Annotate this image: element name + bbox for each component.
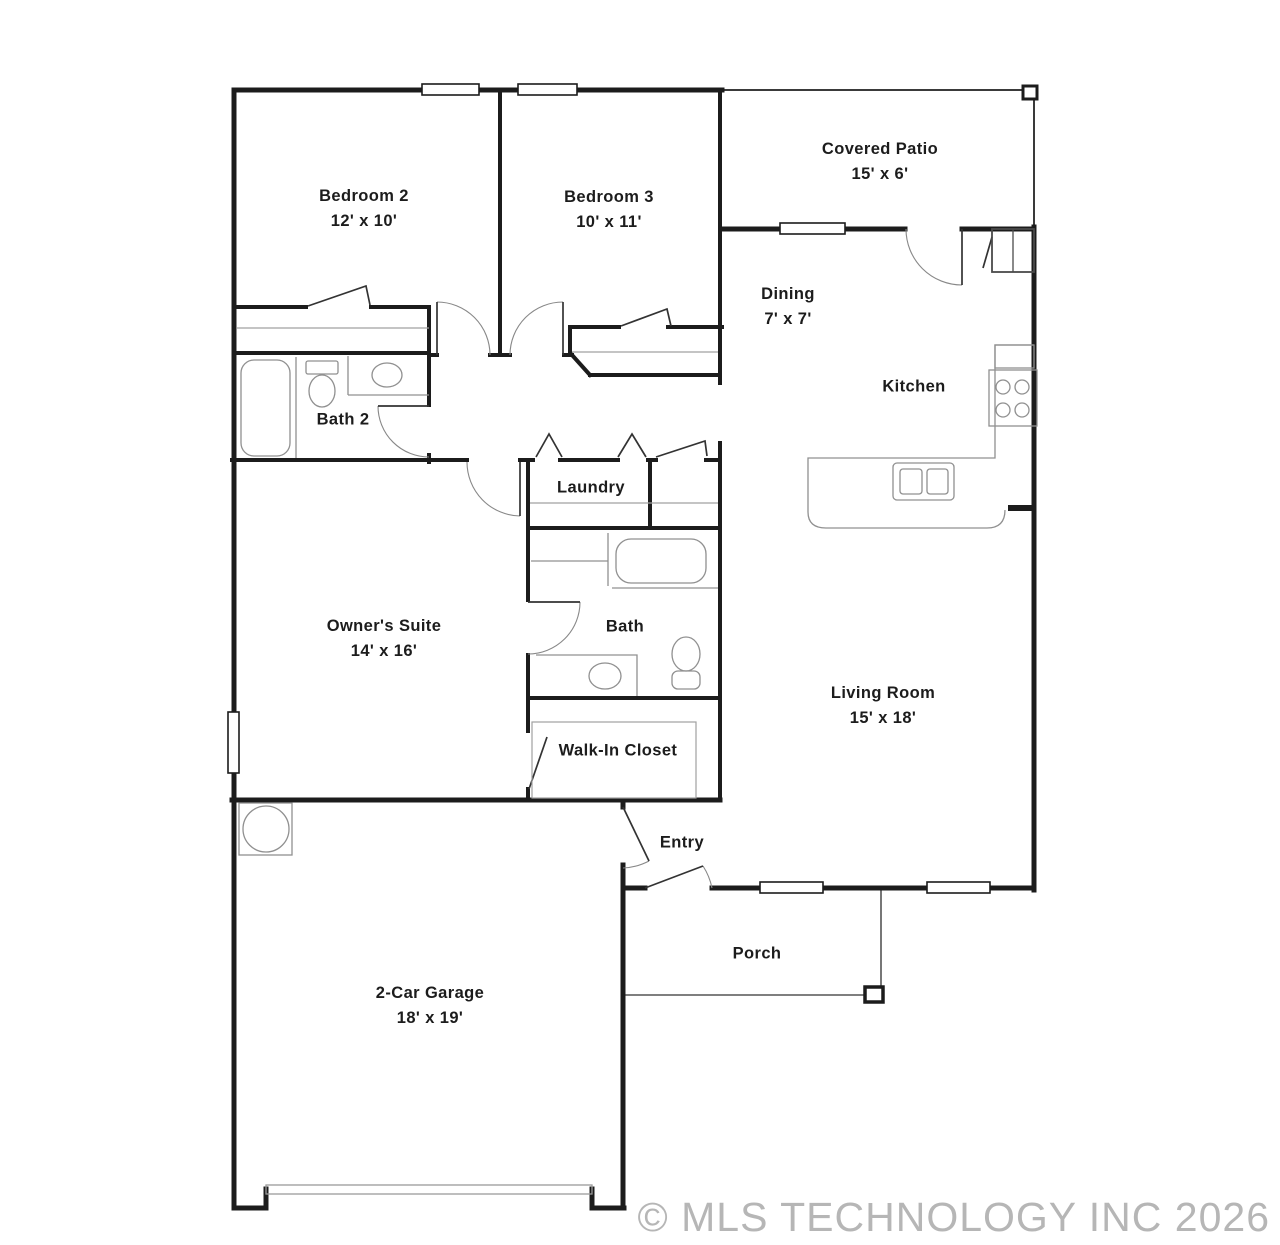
room-dims: 7' x 7' <box>761 307 815 332</box>
sink-icon <box>589 663 621 689</box>
porch-column <box>865 987 883 1002</box>
suite-door-arc <box>467 462 520 516</box>
bedroom3-closet-door <box>621 309 671 326</box>
entry-door <box>645 866 703 888</box>
bedroom2-door-arc <box>437 302 490 355</box>
room-name: Dining <box>761 282 815 307</box>
room-label-covered-patio: Covered Patio 15' x 6' <box>822 137 938 187</box>
bathtub-icon <box>241 360 290 456</box>
room-name: Owner's Suite <box>327 614 442 639</box>
bath2-door-arc <box>378 406 429 457</box>
owners-suite-window <box>228 712 239 773</box>
bath-door-arc <box>528 602 580 654</box>
room-dims: 15' x 6' <box>822 162 938 187</box>
garage-door-arc <box>623 861 649 868</box>
room-label-entry: Entry <box>660 831 704 856</box>
room-label-bedroom-2: Bedroom 2 12' x 10' <box>319 184 409 234</box>
room-name: Kitchen <box>882 375 945 400</box>
room-label-garage: 2-Car Garage 18' x 19' <box>376 981 484 1031</box>
room-label-bath-2: Bath 2 <box>317 408 370 433</box>
room-dims: 10' x 11' <box>564 210 654 235</box>
patio-column <box>1023 86 1037 99</box>
laundry-bifold-door-left <box>536 434 562 457</box>
room-dims: 15' x 18' <box>831 706 935 731</box>
room-dims: 12' x 10' <box>319 209 409 234</box>
room-label-kitchen: Kitchen <box>882 375 945 400</box>
garage-entry-door <box>623 807 649 861</box>
living-window-right <box>927 882 990 893</box>
living-window-left <box>760 882 823 893</box>
bedroom2-closet-door <box>308 286 370 306</box>
room-name: Bedroom 3 <box>564 185 654 210</box>
room-name: Living Room <box>831 681 935 706</box>
copyright-watermark: © MLS TECHNOLOGY INC 2026 <box>638 1194 1270 1241</box>
room-name: Bath 2 <box>317 408 370 433</box>
bath-vanity <box>536 655 637 696</box>
toilet-bowl-icon <box>672 637 700 671</box>
stove-icon <box>989 370 1037 426</box>
sink-icon <box>372 363 402 387</box>
garage-overhead-door <box>266 1185 592 1194</box>
laundry-bifold-door-right <box>618 434 646 457</box>
room-label-walk-in-closet: Walk-In Closet <box>559 739 678 764</box>
room-name: 2-Car Garage <box>376 981 484 1006</box>
room-name: Walk-In Closet <box>559 739 678 764</box>
room-name: Laundry <box>557 476 625 501</box>
toilet-bowl-icon <box>309 375 335 407</box>
bathtub-icon <box>616 539 706 583</box>
kitchen-cabinet <box>995 345 1034 368</box>
water-heater-icon <box>243 806 289 852</box>
room-label-porch: Porch <box>733 942 782 967</box>
pantry-door <box>983 237 992 268</box>
room-label-owners-suite: Owner's Suite 14' x 16' <box>327 614 442 664</box>
room-dims: 18' x 19' <box>376 1006 484 1031</box>
room-label-laundry: Laundry <box>557 476 625 501</box>
dining-window <box>780 223 845 234</box>
room-name: Bedroom 2 <box>319 184 409 209</box>
toilet-tank-icon <box>306 361 338 374</box>
room-label-bath: Bath <box>606 615 644 640</box>
bedroom3-window <box>518 84 577 95</box>
hall-closet-door <box>656 441 707 457</box>
bath2-vanity <box>348 356 429 395</box>
room-name: Porch <box>733 942 782 967</box>
room-label-living-room: Living Room 15' x 18' <box>831 681 935 731</box>
room-name: Bath <box>606 615 644 640</box>
room-label-bedroom-3: Bedroom 3 10' x 11' <box>564 185 654 235</box>
floorplan-canvas: Bedroom 2 12' x 10' Bedroom 3 10' x 11' … <box>0 0 1280 1245</box>
room-dims: 14' x 16' <box>327 639 442 664</box>
patio-door-arc <box>906 229 962 285</box>
water-heater-pad <box>239 803 292 855</box>
closet-shelves <box>237 328 718 798</box>
room-name: Entry <box>660 831 704 856</box>
bedroom3-door-arc <box>510 302 563 355</box>
toilet-base-icon <box>672 671 700 689</box>
bedroom2-window <box>422 84 479 95</box>
room-label-dining: Dining 7' x 7' <box>761 282 815 332</box>
room-name: Covered Patio <box>822 137 938 162</box>
entry-door-arc <box>703 866 712 888</box>
